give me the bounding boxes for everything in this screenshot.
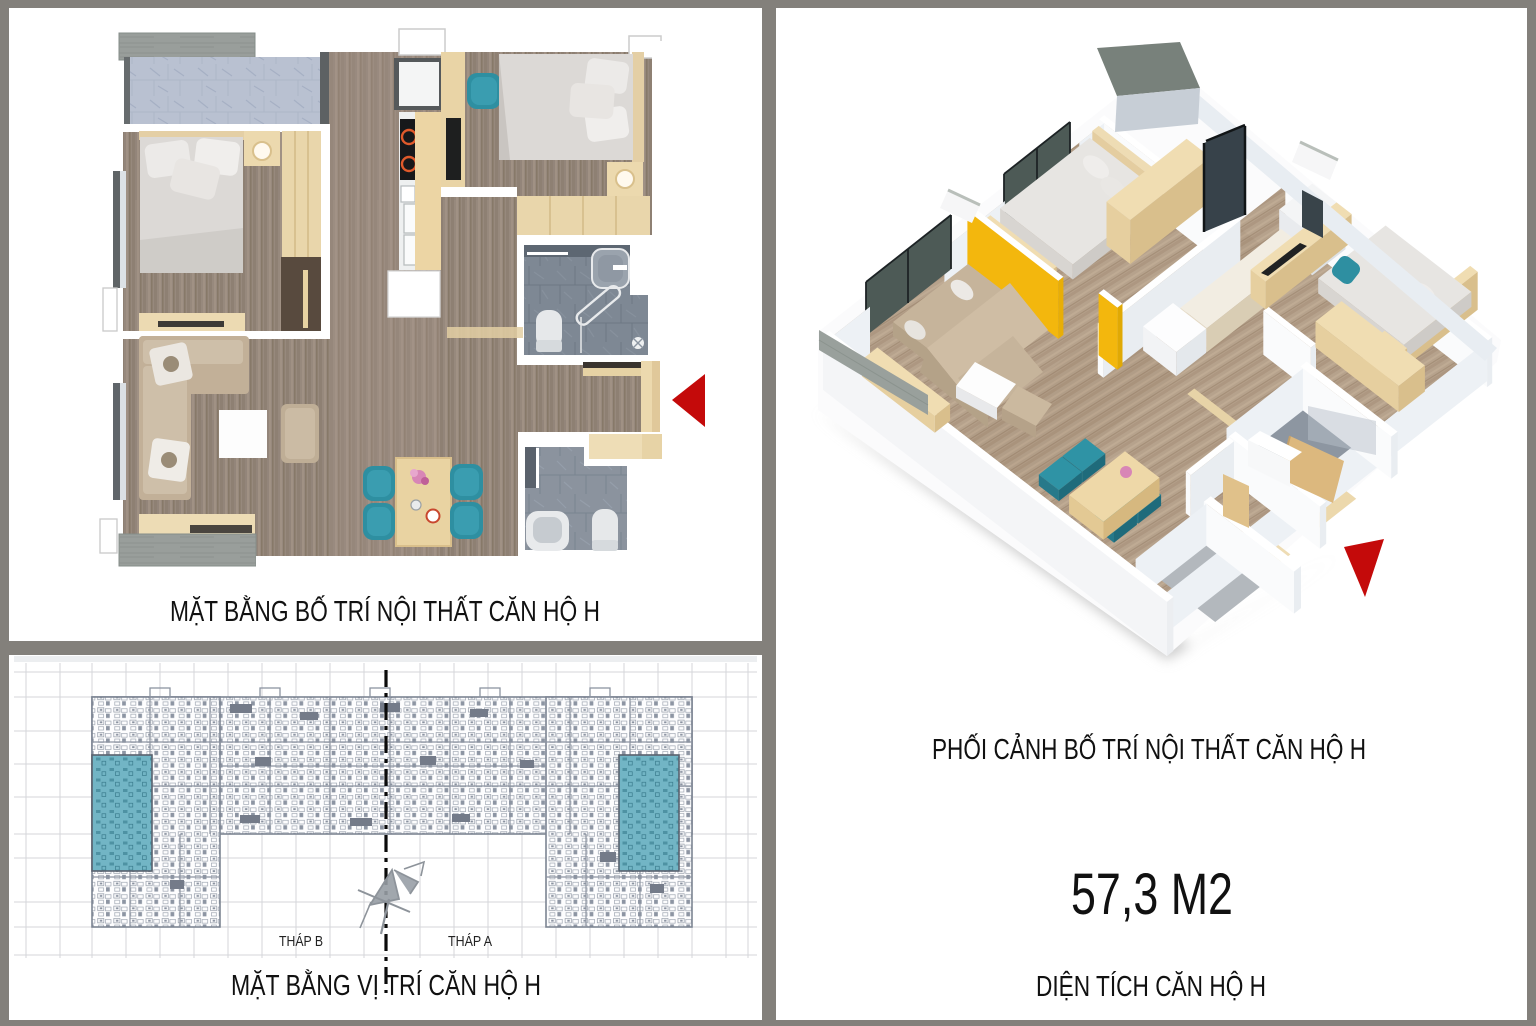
svg-text:MẶT BẰNG VỊ TRÍ CĂN HỘ H: MẶT BẰNG VỊ TRÍ CĂN HỘ H — [231, 968, 541, 1002]
svg-text:THÁP B: THÁP B — [279, 933, 323, 950]
svg-text:THÁP A: THÁP A — [448, 933, 492, 950]
svg-text:MẶT BẰNG BỐ TRÍ NỘI THẤT CĂN H: MẶT BẰNG BỐ TRÍ NỘI THẤT CĂN HỘ H — [170, 594, 600, 628]
svg-text:PHỐI CẢNH BỐ TRÍ NỘI THẤT CĂN: PHỐI CẢNH BỐ TRÍ NỘI THẤT CĂN HỘ H — [932, 732, 1366, 766]
svg-text:57,3 M2: 57,3 M2 — [1071, 862, 1233, 927]
svg-text:DIỆN TÍCH CĂN HỘ H: DIỆN TÍCH CĂN HỘ H — [1036, 969, 1266, 1003]
